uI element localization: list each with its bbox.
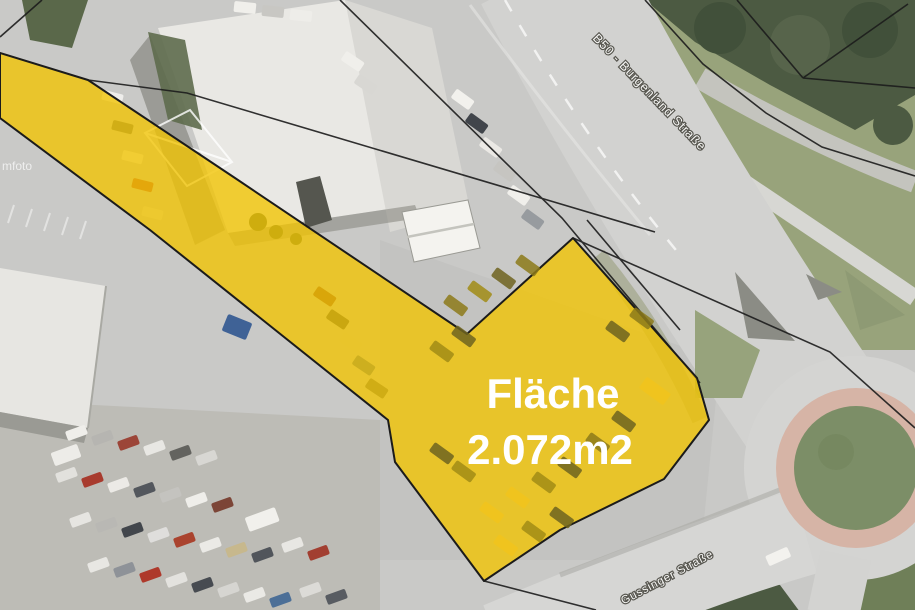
warehouse-left [0, 268, 106, 443]
parcel-area-label-line2: 2.072m2 [467, 426, 633, 473]
roundabout-green-island [794, 406, 915, 530]
photo-watermark: mfoto [2, 159, 32, 173]
aerial-map-image: Fläche 2.072m2 B50 - Burgenland Straße G… [0, 0, 915, 610]
parcel-area-label-line1: Fläche [486, 370, 619, 417]
aerial-map-svg: Fläche 2.072m2 B50 - Burgenland Straße G… [0, 0, 915, 610]
roundabout-south-exit [833, 555, 846, 610]
